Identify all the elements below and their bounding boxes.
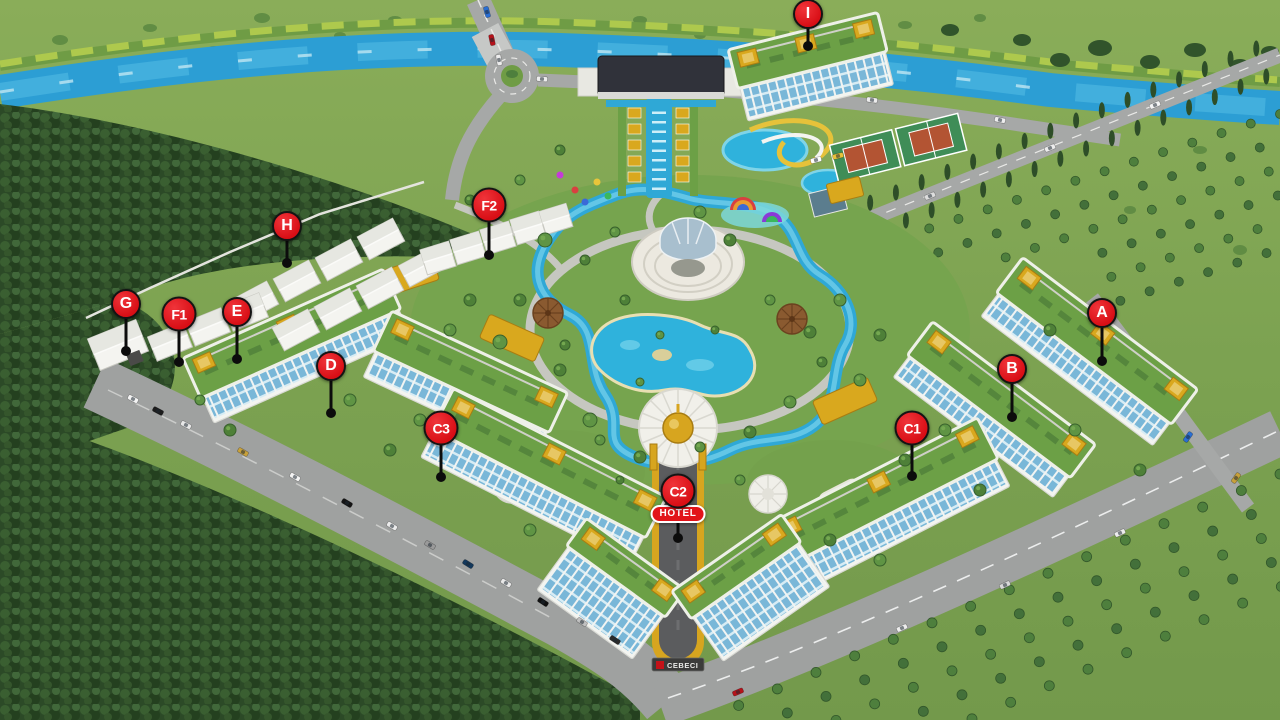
map-marker-b[interactable]: B	[997, 354, 1027, 384]
map-marker-i[interactable]: I	[793, 0, 823, 29]
marker-pin-dot	[326, 408, 336, 418]
markers-layer: ABC1HOTELC2C3DEF1F2GHI	[0, 0, 1280, 720]
marker-pin-dot	[803, 41, 813, 51]
map-marker-c1[interactable]: C1	[895, 411, 930, 446]
map-marker-h[interactable]: H	[272, 211, 302, 241]
map-marker-c3[interactable]: C3	[424, 411, 459, 446]
map-marker-f1[interactable]: F1	[162, 297, 197, 332]
map-marker-a[interactable]: A	[1087, 298, 1117, 328]
marker-pin-dot	[232, 354, 242, 364]
marker-pin-dot	[484, 250, 494, 260]
masterplan-aerial-render: CEBECI ABC1HOTELC2C3DEF1F2GHI	[0, 0, 1280, 720]
marker-pin-dot	[907, 471, 917, 481]
marker-pin-dot	[1007, 412, 1017, 422]
map-marker-c2[interactable]: C2	[661, 474, 696, 509]
marker-pin-dot	[436, 472, 446, 482]
map-marker-e[interactable]: E	[222, 297, 252, 327]
marker-pin-dot	[174, 357, 184, 367]
map-marker-g[interactable]: G	[111, 289, 141, 319]
marker-pin-dot	[673, 533, 683, 543]
marker-pin-dot	[1097, 356, 1107, 366]
marker-pin-dot	[282, 258, 292, 268]
marker-pin-dot	[121, 346, 131, 356]
map-marker-f2[interactable]: F2	[472, 188, 507, 223]
map-marker-d[interactable]: D	[316, 351, 346, 381]
